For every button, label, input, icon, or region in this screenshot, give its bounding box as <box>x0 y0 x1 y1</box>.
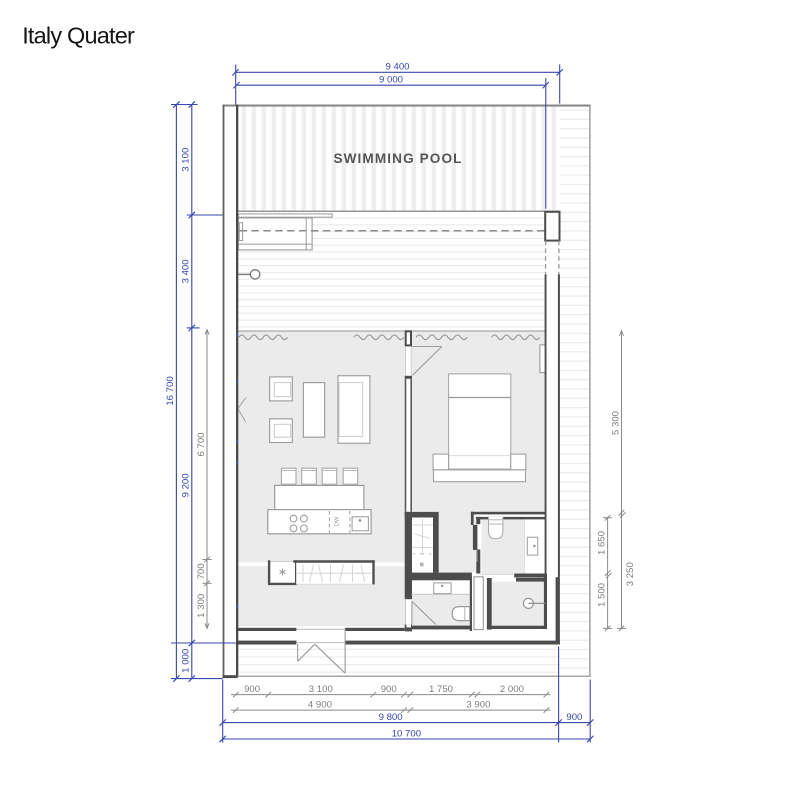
svg-text:900: 900 <box>381 684 397 695</box>
svg-text:9 400: 9 400 <box>385 62 409 73</box>
svg-text:4 900: 4 900 <box>308 700 332 711</box>
svg-text:1 750: 1 750 <box>429 684 453 695</box>
svg-text:3 100: 3 100 <box>309 684 333 695</box>
svg-text:1 300: 1 300 <box>196 594 207 618</box>
svg-text:2 000: 2 000 <box>500 684 524 695</box>
svg-text:1 500: 1 500 <box>597 583 608 607</box>
svg-text:3 900: 3 900 <box>466 700 490 711</box>
svg-text:10 700: 10 700 <box>392 728 421 739</box>
svg-text:3 400: 3 400 <box>180 259 191 283</box>
svg-text:3 100: 3 100 <box>180 148 191 172</box>
svg-text:700: 700 <box>196 563 207 579</box>
svg-text:900: 900 <box>566 712 582 723</box>
svg-text:DW: DW <box>335 516 341 526</box>
svg-text:Italy Quater: Italy Quater <box>22 23 135 49</box>
svg-text:1 000: 1 000 <box>180 649 191 673</box>
svg-text:9 800: 9 800 <box>379 712 403 723</box>
svg-text:1 650: 1 650 <box>597 531 608 555</box>
svg-text:5 300: 5 300 <box>611 411 622 435</box>
svg-text:6 700: 6 700 <box>196 432 207 456</box>
svg-text:SWIMMING POOL: SWIMMING POOL <box>333 151 462 166</box>
svg-text:9 000: 9 000 <box>379 75 403 86</box>
svg-text:900: 900 <box>244 684 260 695</box>
svg-text:9 200: 9 200 <box>180 473 191 497</box>
svg-text:3 250: 3 250 <box>625 562 636 586</box>
svg-text:16 700: 16 700 <box>165 376 176 405</box>
